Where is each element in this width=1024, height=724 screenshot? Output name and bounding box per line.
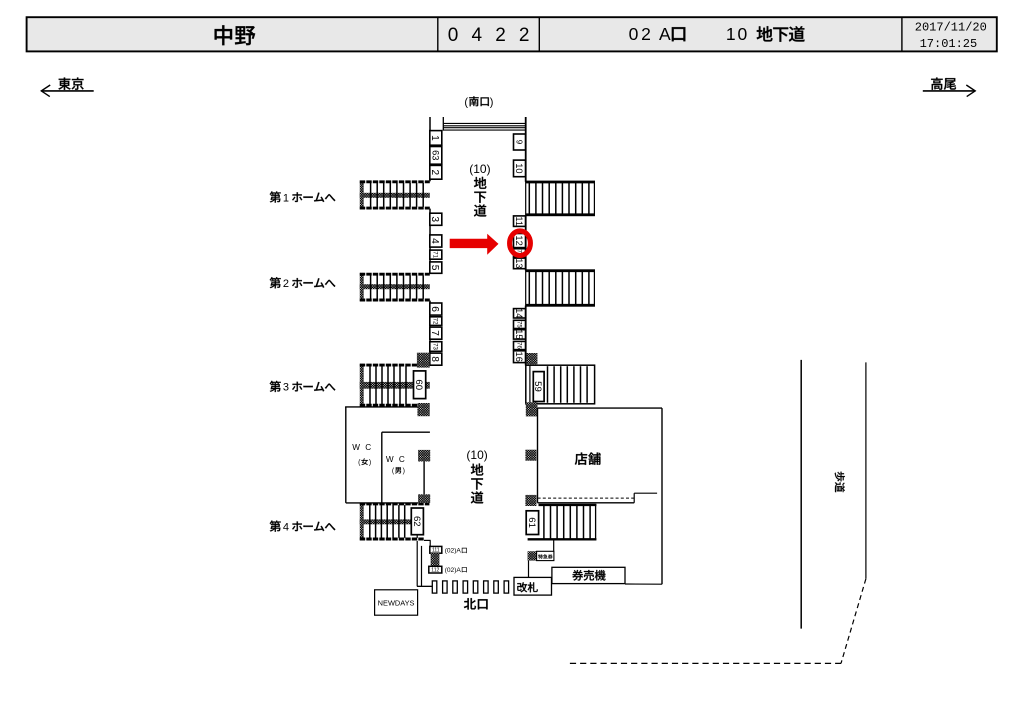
svg-text:(02)A: (02)A — [445, 567, 462, 574]
svg-text:1: 1 — [429, 135, 440, 141]
svg-text:61: 61 — [526, 517, 537, 528]
svg-text:13: 13 — [514, 258, 524, 268]
svg-text:1: 1 — [283, 192, 289, 204]
svg-text:A: A — [659, 24, 671, 44]
svg-text:9: 9 — [515, 140, 524, 145]
svg-text:(02)A: (02)A — [445, 548, 462, 555]
svg-text:63: 63 — [431, 150, 441, 160]
svg-text:4: 4 — [429, 238, 440, 244]
svg-text:0: 0 — [738, 24, 748, 44]
svg-text:76: 76 — [515, 342, 521, 349]
svg-text:2: 2 — [495, 25, 506, 46]
svg-text:W C: W C — [352, 443, 372, 452]
svg-text:15: 15 — [514, 329, 524, 339]
svg-text:3: 3 — [283, 382, 289, 394]
svg-text:2017/11/20: 2017/11/20 — [915, 21, 987, 35]
svg-text:): ) — [369, 460, 371, 467]
svg-text:73: 73 — [432, 343, 438, 350]
svg-text:62: 62 — [411, 516, 422, 527]
svg-text:W C: W C — [386, 455, 406, 464]
svg-text:111: 111 — [432, 548, 440, 554]
svg-text:5: 5 — [429, 265, 440, 271]
svg-text:0: 0 — [448, 25, 459, 46]
svg-text:2: 2 — [519, 25, 530, 46]
svg-text:71: 71 — [432, 251, 438, 258]
svg-text:12: 12 — [514, 235, 524, 245]
svg-text:(10): (10) — [469, 162, 490, 176]
svg-text:75: 75 — [515, 321, 521, 328]
svg-text:1: 1 — [726, 24, 736, 44]
svg-text:7: 7 — [429, 330, 440, 336]
svg-text:6: 6 — [429, 306, 440, 312]
svg-text:2: 2 — [283, 278, 289, 290]
svg-text:16: 16 — [514, 352, 524, 362]
svg-text:10: 10 — [514, 163, 524, 173]
svg-text:112: 112 — [431, 567, 439, 573]
svg-text:17:01:25: 17:01:25 — [920, 37, 978, 51]
svg-text:4: 4 — [472, 25, 483, 46]
svg-text:4: 4 — [283, 521, 289, 533]
svg-text:): ) — [490, 97, 494, 109]
svg-text:(: ( — [464, 97, 468, 109]
svg-text:(10): (10) — [466, 448, 487, 462]
svg-text:NEWDAYS: NEWDAYS — [378, 599, 415, 608]
svg-text:2: 2 — [641, 24, 651, 44]
svg-text:59: 59 — [532, 381, 543, 392]
svg-text:14: 14 — [514, 308, 524, 318]
svg-text:60: 60 — [413, 379, 424, 390]
svg-text:11: 11 — [514, 216, 524, 226]
svg-text:8: 8 — [429, 356, 440, 362]
svg-text:72: 72 — [432, 318, 438, 325]
svg-text:3: 3 — [429, 216, 440, 222]
svg-text:0: 0 — [629, 24, 639, 44]
svg-text:2: 2 — [429, 169, 440, 175]
svg-text:): ) — [403, 468, 405, 475]
